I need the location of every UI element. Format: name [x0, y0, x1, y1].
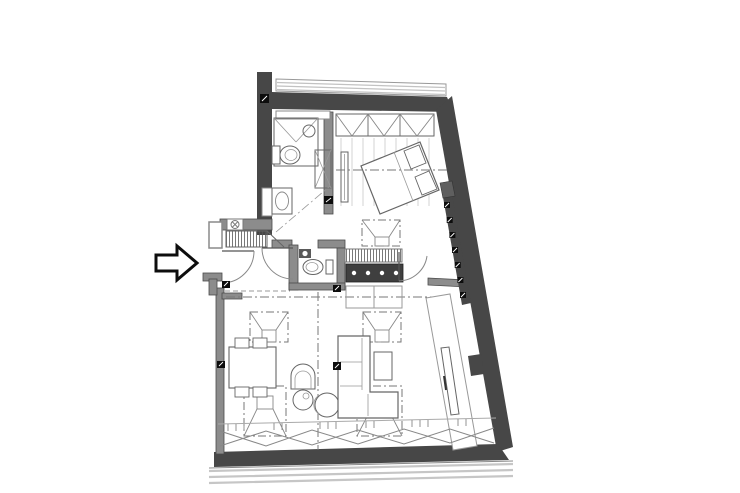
- bathroom-shower-drain: [303, 125, 315, 137]
- bath-bottom-wall-right: [318, 240, 345, 248]
- bedroom-wardrobe-triangles: [336, 114, 434, 136]
- kitchen-hob-burner-4: [394, 271, 398, 275]
- skylight-2-inner: [375, 330, 389, 342]
- side-table-round: [293, 390, 313, 410]
- slant-wall-gray-block: [440, 181, 455, 198]
- dining-chair-4: [253, 387, 267, 397]
- living-wall-left: [216, 288, 224, 454]
- floor-plan-page: [0, 0, 740, 493]
- bedroom-skylight-outline: [362, 220, 400, 246]
- kitchen-hob-burner-3: [380, 271, 384, 275]
- wc-corner-basin-bowl: [302, 251, 307, 256]
- hall-wardrobe: [226, 231, 267, 247]
- entrance-door-swing: [222, 251, 254, 283]
- bedroom-wardrobe-dividers: [368, 114, 400, 136]
- wc-toilet-tank: [326, 260, 333, 274]
- skylight-2-funnel: [363, 312, 401, 330]
- bathroom-shower-folds: [274, 118, 318, 142]
- floor-plan-svg: [0, 0, 740, 493]
- bathroom-toilet-tank: [272, 146, 280, 164]
- entrance-arrow: [156, 246, 197, 280]
- kitchen-hob-burner-2: [366, 271, 370, 275]
- dining-chair-3: [235, 387, 249, 397]
- dining-chair-2: [253, 338, 267, 348]
- skylight-1-funnel: [250, 312, 288, 330]
- entry-niche: [209, 222, 222, 248]
- hall-ledge-wall: [222, 293, 242, 299]
- kitchen-hob-burner-1: [352, 271, 356, 275]
- kitchen-backsplash: [345, 249, 402, 262]
- skylight-1-outline: [250, 312, 288, 342]
- bedroom-skylight-inner: [375, 237, 389, 246]
- bedroom-skylight-funnel: [362, 220, 400, 237]
- bathroom-wall-niche: [262, 188, 272, 216]
- skylight-3-inner: [257, 396, 273, 409]
- coffee-table: [374, 352, 392, 380]
- dining-chair-1: [235, 338, 249, 348]
- hall-step-wall-v: [209, 279, 217, 295]
- bath-door-swing: [262, 248, 293, 279]
- dining-table: [229, 347, 276, 388]
